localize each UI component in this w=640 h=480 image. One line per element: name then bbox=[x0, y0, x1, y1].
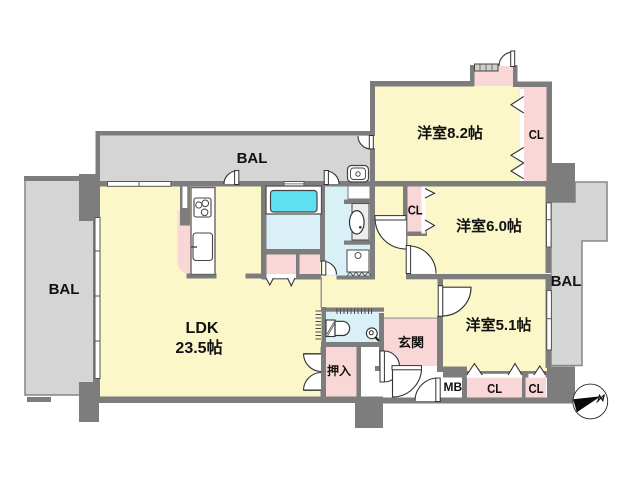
svg-text:LDK: LDK bbox=[186, 320, 219, 337]
svg-text:23.5帖: 23.5帖 bbox=[175, 338, 222, 357]
svg-text:MB: MB bbox=[443, 380, 462, 394]
svg-text:CL: CL bbox=[408, 203, 423, 218]
svg-text:玄関: 玄関 bbox=[398, 335, 424, 350]
svg-text:CL: CL bbox=[529, 381, 544, 396]
svg-text:BAL: BAL bbox=[551, 273, 582, 290]
svg-text:洋室8.2帖: 洋室8.2帖 bbox=[417, 124, 483, 142]
svg-text:押入: 押入 bbox=[327, 363, 351, 378]
svg-text:BAL: BAL bbox=[49, 281, 80, 298]
svg-text:CL: CL bbox=[529, 127, 544, 142]
svg-text:洋室5.1帖: 洋室5.1帖 bbox=[466, 316, 532, 334]
svg-text:洋室6.0帖: 洋室6.0帖 bbox=[456, 217, 522, 235]
svg-text:BAL: BAL bbox=[237, 150, 268, 167]
svg-text:CL: CL bbox=[487, 381, 502, 396]
